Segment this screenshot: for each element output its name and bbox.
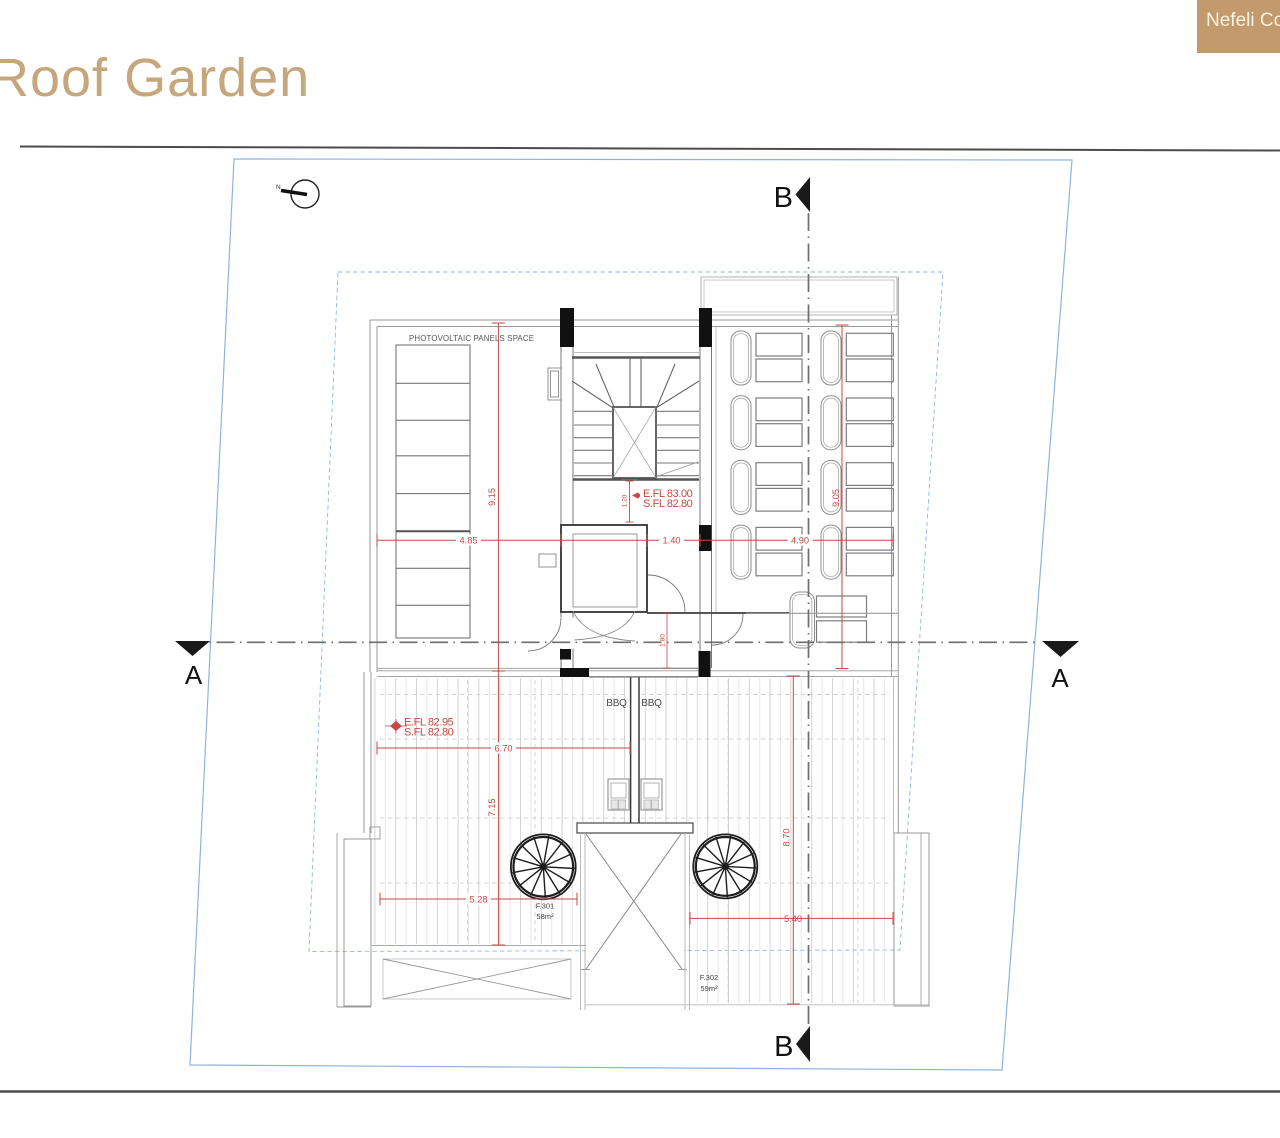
svg-text:F.302: F.302 <box>700 973 719 982</box>
svg-text:B: B <box>774 182 793 214</box>
svg-text:A: A <box>185 660 203 690</box>
svg-text:59m²: 59m² <box>700 984 718 993</box>
svg-text:7.15: 7.15 <box>487 798 497 816</box>
svg-text:9.05: 9.05 <box>831 489 841 507</box>
svg-text:8.70: 8.70 <box>782 828 792 846</box>
svg-text:4.85: 4.85 <box>459 536 477 546</box>
svg-text:B: B <box>774 1031 793 1063</box>
svg-text:1.80: 1.80 <box>660 634 667 647</box>
svg-text:N: N <box>276 184 281 191</box>
svg-text:BBQ: BBQ <box>641 698 662 709</box>
svg-text:BBQ: BBQ <box>606 698 627 709</box>
svg-text:A: A <box>1051 663 1069 693</box>
svg-text:5.40: 5.40 <box>784 914 802 924</box>
svg-text:1.20: 1.20 <box>622 494 629 507</box>
svg-text:58m²: 58m² <box>536 912 554 921</box>
svg-text:5.28: 5.28 <box>469 895 487 905</box>
svg-text:4.90: 4.90 <box>791 536 809 546</box>
svg-text:F.301: F.301 <box>536 902 555 911</box>
svg-text:1.40: 1.40 <box>662 536 680 546</box>
svg-text:S.FL 82.80: S.FL 82.80 <box>404 727 454 739</box>
svg-text:6.70: 6.70 <box>494 744 512 754</box>
svg-text:Roof Garden: Roof Garden <box>0 48 310 108</box>
svg-text:PHOTOVOLTAIC PANELS SPACE: PHOTOVOLTAIC PANELS SPACE <box>409 334 534 343</box>
svg-text:Nefeli Co: Nefeli Co <box>1206 10 1280 31</box>
svg-text:S.FL 82.80: S.FL 82.80 <box>643 498 693 510</box>
svg-text:9.15: 9.15 <box>487 488 497 506</box>
